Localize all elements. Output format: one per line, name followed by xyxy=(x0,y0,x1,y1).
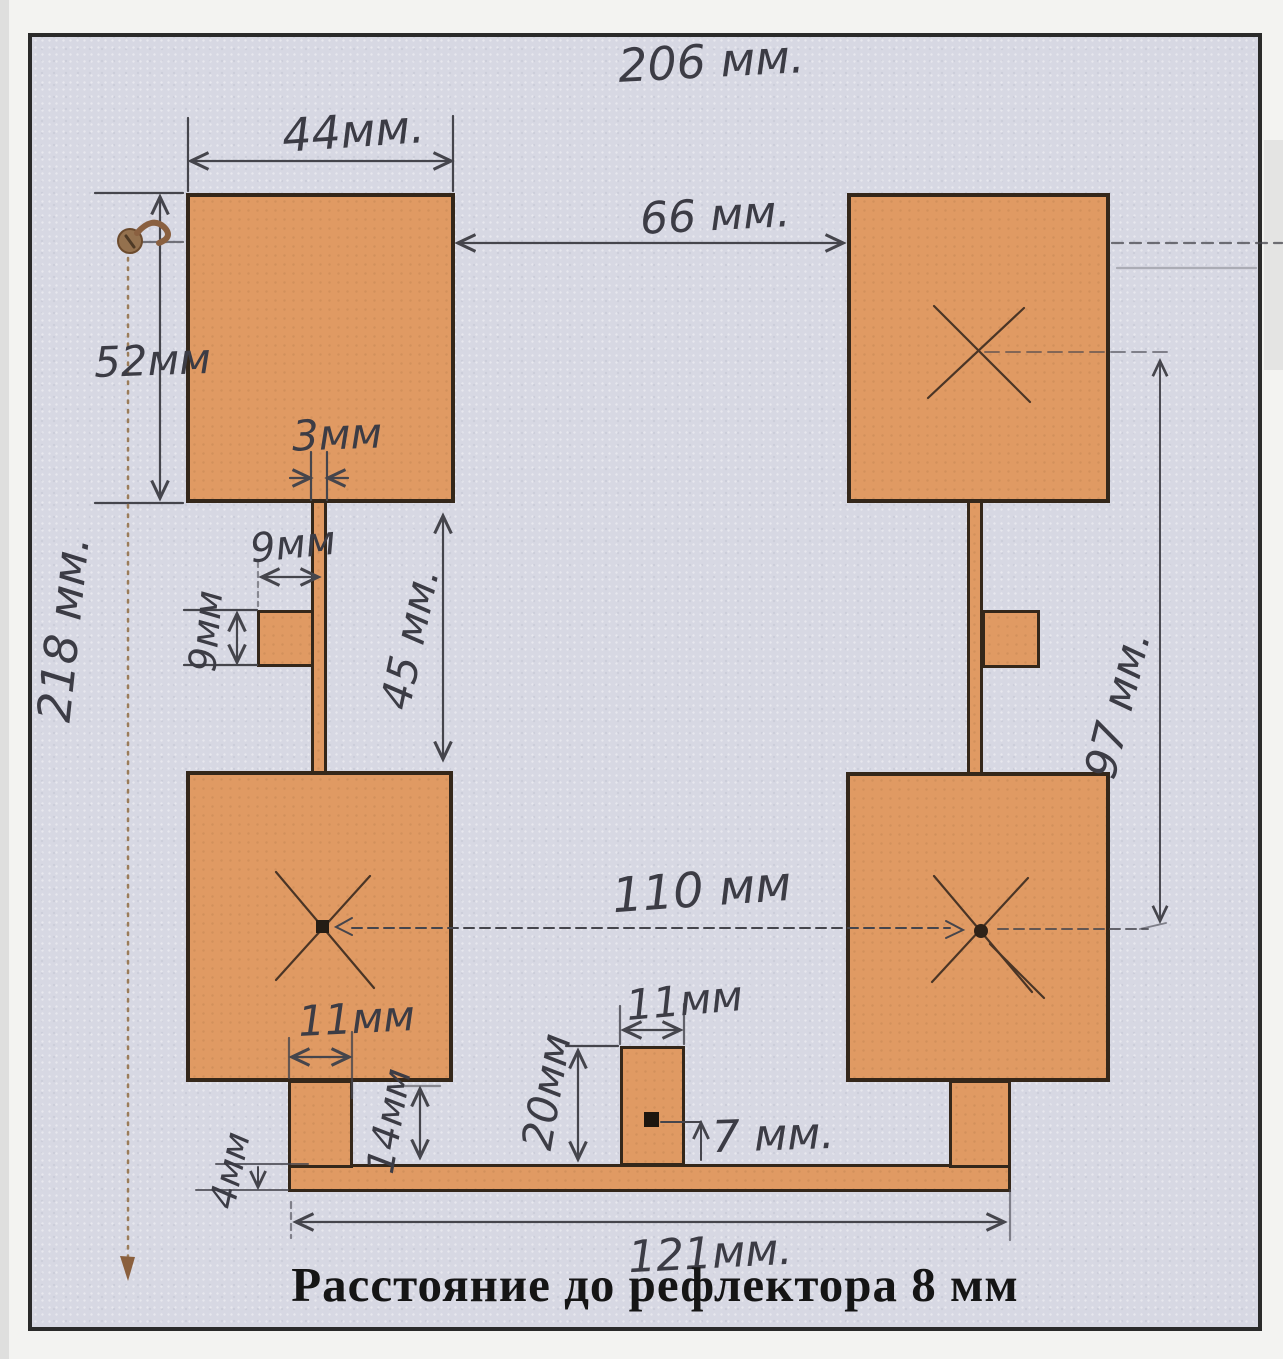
dim-label-lower-tab-width: 11мм xyxy=(297,991,416,1046)
stub-tab-right xyxy=(982,610,1040,668)
scan-edge-artifact-right xyxy=(1264,140,1283,370)
feed-stub-center xyxy=(620,1046,685,1166)
dim-label-feed-offset: 7 мм. xyxy=(711,1108,835,1163)
stub-tab-left xyxy=(257,610,314,667)
dim-label-top-gap: 66 мм. xyxy=(639,186,792,245)
dim-label-feed-width: 3мм xyxy=(291,408,383,460)
dim-label-patch-width: 44мм. xyxy=(280,99,426,163)
connector-tab-left xyxy=(288,1080,353,1168)
patch-top-right xyxy=(847,193,1110,503)
scan-edge-artifact-left xyxy=(0,0,9,1359)
scanned-antenna-drawing: 206 мм. 44мм. 66 мм. 52мм 3мм 9мм 9мм 45… xyxy=(0,0,1283,1359)
feed-line-right xyxy=(967,500,983,775)
dim-label-tab-width: 9мм xyxy=(248,518,338,573)
caption-reflector-distance: Расстояние до рефлектора 8 мм xyxy=(240,1256,1070,1313)
dim-label-total-width: 206 мм. xyxy=(617,29,806,93)
connector-tab-right xyxy=(949,1080,1011,1168)
patch-bottom-right xyxy=(846,772,1110,1082)
dim-label-stub-width: 11мм xyxy=(624,971,745,1030)
feed-point-dot xyxy=(644,1112,659,1127)
dim-label-patch-height: 52мм xyxy=(93,334,211,387)
dim-label-tab-height: 9мм xyxy=(180,588,231,673)
